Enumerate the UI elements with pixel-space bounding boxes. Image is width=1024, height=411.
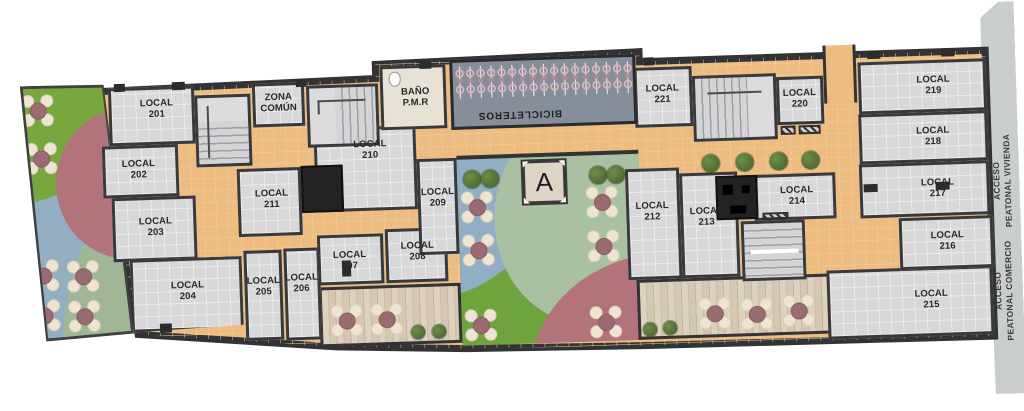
deck-table	[369, 302, 404, 337]
wall-notch	[114, 84, 125, 92]
wall-notch	[160, 323, 172, 332]
label-local-210: LOCAL210	[353, 139, 387, 162]
stairs-southeast	[741, 219, 807, 281]
vent-grille	[762, 212, 788, 220]
terrace-table	[23, 93, 55, 128]
deck-plant	[432, 324, 446, 338]
label-bano-pmr: BAÑOP.M.R	[401, 87, 430, 110]
label-local-207: LOCAL207	[333, 250, 367, 273]
deck-right	[637, 273, 847, 340]
deck-table	[697, 296, 732, 331]
label-local-215: LOCAL215	[914, 289, 948, 312]
wall-notch	[867, 51, 880, 59]
terrace-table	[67, 299, 102, 334]
courtyard-table	[459, 190, 494, 225]
label-local-218: LOCAL218	[916, 126, 950, 149]
label-local-203: LOCAL203	[139, 216, 173, 239]
terrace-table	[24, 141, 59, 176]
label-local-213: LOCAL213	[690, 206, 724, 229]
deck-plant	[411, 325, 425, 339]
courtyard-table	[461, 233, 496, 268]
deck-plant	[663, 321, 677, 335]
label-local-217: LOCAL217	[921, 177, 955, 200]
vent-grille	[799, 125, 821, 135]
stairs-northeast	[692, 73, 778, 142]
deck-left	[319, 283, 463, 348]
label-local-206: LOCAL206	[285, 273, 319, 296]
floorplan: ACCESO PEATONAL VIVIENDA ACCESO PEATONAL…	[0, 0, 1024, 411]
label-local-220: LOCAL220	[783, 88, 817, 111]
wall-notch	[643, 57, 653, 65]
label-local-216: LOCAL216	[930, 230, 964, 253]
bicicleteros-label: BICICLETEROS	[454, 106, 586, 121]
label-local-214: LOCAL214	[780, 185, 814, 208]
toilet-icon	[389, 72, 401, 87]
wall-notch	[864, 184, 878, 192]
label-local-204: LOCAL204	[171, 280, 205, 303]
label-local-219: LOCAL219	[916, 75, 950, 98]
room-local-215	[826, 265, 994, 339]
label-zona-comun: ZONACOMÚN	[260, 92, 297, 115]
label-local-209: LOCAL209	[421, 187, 455, 210]
courtyard-table	[463, 308, 498, 343]
label-local-212: LOCAL212	[635, 201, 669, 224]
courtyard-table	[588, 304, 623, 339]
label-local-201: LOCAL201	[140, 98, 174, 121]
wall-notch	[296, 79, 306, 87]
deck-table	[329, 303, 364, 338]
bike-racks	[454, 60, 635, 104]
wall-notch	[172, 82, 185, 90]
wall-notch	[941, 48, 954, 56]
floorplan-stage: ACCESO PEATONAL VIVIENDA ACCESO PEATONAL…	[0, 0, 1024, 411]
terrace-table	[66, 259, 101, 294]
room-local-212	[625, 167, 683, 280]
label-local-221: LOCAL221	[645, 83, 679, 106]
wall-notch	[419, 61, 431, 69]
marker-a-box: A	[521, 158, 568, 205]
deck-plant	[643, 322, 657, 336]
entrance-gap	[824, 45, 856, 104]
courtyard-table	[584, 184, 619, 219]
label-local-211: LOCAL211	[255, 188, 289, 211]
deck-table	[781, 293, 816, 328]
deck-table	[739, 296, 774, 331]
stairs-west	[194, 94, 252, 168]
shaft-center	[301, 165, 345, 213]
courtyard-table	[586, 228, 621, 263]
label-local-208: LOCAL208	[401, 241, 435, 264]
marker-a-label: A	[525, 162, 564, 201]
room-bicicleteros: BICICLETEROS	[449, 54, 637, 130]
label-local-202: LOCAL202	[122, 159, 156, 182]
vent-grille	[781, 126, 796, 135]
label-local-205: LOCAL205	[247, 276, 281, 299]
